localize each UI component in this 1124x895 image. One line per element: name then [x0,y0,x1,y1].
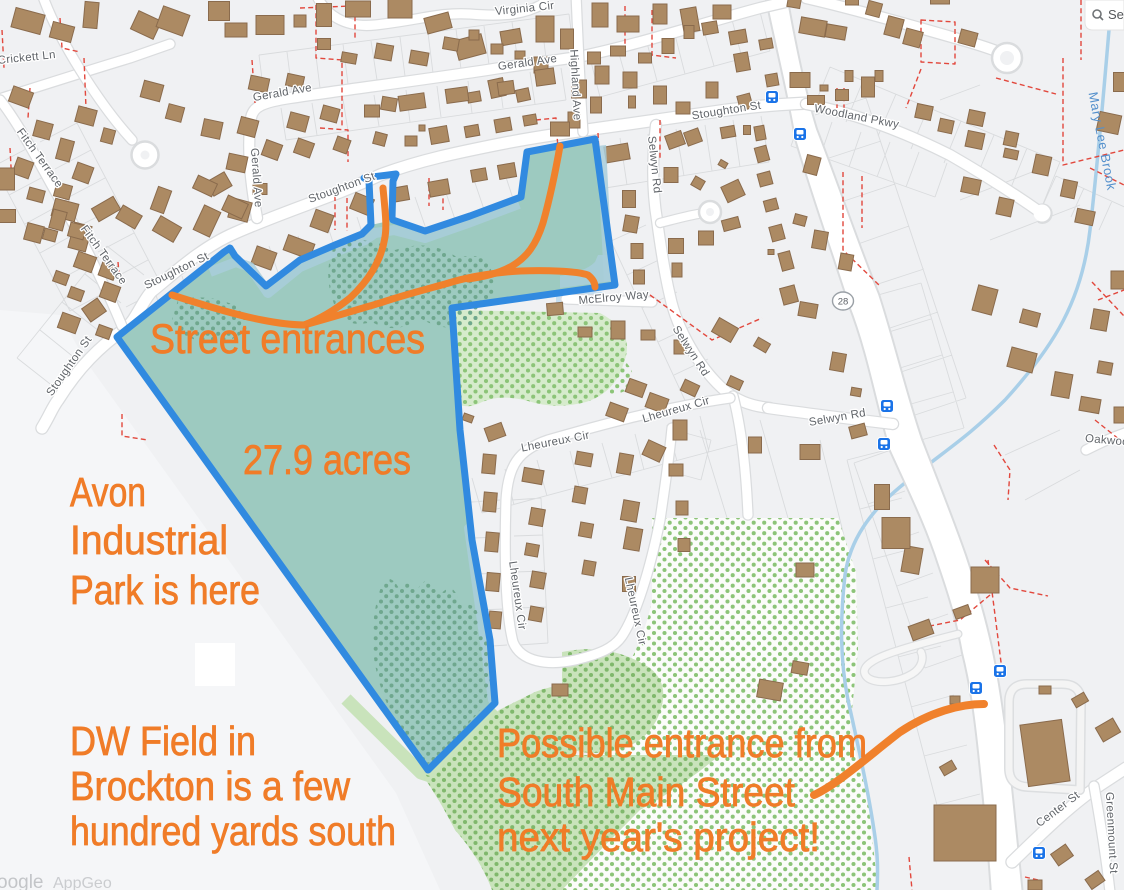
svg-text:Industrial: Industrial [70,517,228,563]
svg-text:AppGeo: AppGeo [53,875,112,890]
svg-text:DW Field in: DW Field in [70,718,256,764]
svg-text:Possible entrance from: Possible entrance from [497,720,867,766]
svg-text:oogle: oogle [0,872,44,890]
svg-text:27.9 acres: 27.9 acres [243,436,411,483]
svg-text:Park is here: Park is here [70,567,260,613]
svg-text:next year's project!: next year's project! [497,814,820,860]
svg-text:Brockton is a few: Brockton is a few [70,763,350,809]
svg-text:hundred yards south: hundred yards south [70,808,396,854]
svg-text:Sea: Sea [1108,7,1124,22]
svg-text:South Main Street: South Main Street [497,769,796,815]
svg-text:Avon: Avon [70,469,146,515]
svg-text:Street entrances: Street entrances [150,315,425,362]
svg-text:28: 28 [838,297,849,308]
